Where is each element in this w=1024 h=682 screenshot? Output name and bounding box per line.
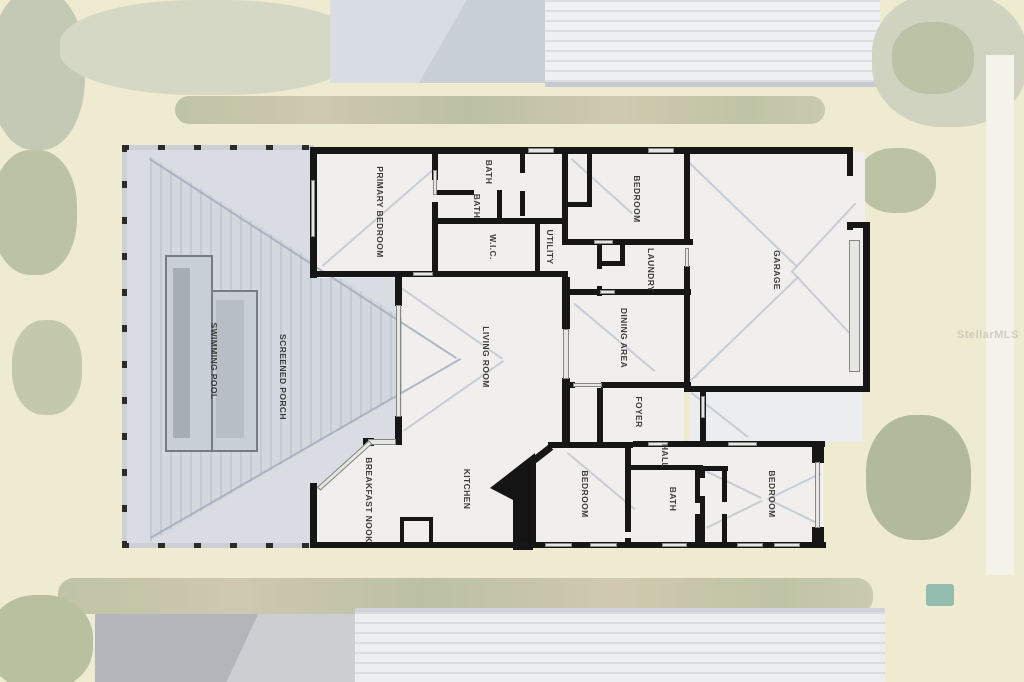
wall <box>520 152 525 173</box>
entry-porch-floor <box>690 392 863 442</box>
room-label-garage: GARAGE <box>772 250 782 290</box>
window-or-door-opening <box>774 543 800 547</box>
wall <box>429 517 433 543</box>
window-or-door-opening <box>648 148 674 153</box>
window-or-door-opening <box>737 543 763 547</box>
window-or-door-opening <box>849 240 860 372</box>
wall <box>625 538 631 548</box>
wall <box>562 239 693 245</box>
window-or-door-opening <box>528 148 554 153</box>
wall <box>625 442 631 532</box>
wall <box>562 277 570 329</box>
window-or-door-opening <box>545 543 572 547</box>
room-label-kitchen: KITCHEN <box>462 469 472 510</box>
wall <box>597 388 603 445</box>
wall <box>863 222 870 392</box>
wall <box>587 152 592 205</box>
wall <box>700 496 705 546</box>
wall <box>601 382 691 388</box>
room-label-bedroom-top: BEDROOM <box>632 175 642 222</box>
window-or-door-opening <box>728 442 757 446</box>
wall <box>690 386 865 392</box>
room-label-utility: UTILITY <box>545 230 555 265</box>
wall <box>684 266 690 392</box>
room-label-swimming-pool: SWIMMING POOL <box>209 323 219 400</box>
wall <box>562 147 568 244</box>
room-label-bedroom-right: BEDROOM <box>767 470 777 517</box>
wall <box>310 147 853 154</box>
wall <box>432 202 438 277</box>
wall <box>684 147 690 240</box>
wall <box>812 527 824 546</box>
wall <box>437 190 474 195</box>
wall <box>812 444 824 463</box>
window-or-door-opening <box>590 543 617 547</box>
room-label-bath-3: BATH <box>668 487 678 512</box>
room-label-wic: W.I.C. <box>488 234 498 260</box>
room-label-screened-porch: SCREENED PORCH <box>278 334 288 420</box>
mls-watermark: StellarMLS <box>957 329 1019 341</box>
room-label-living-room: LIVING ROOM <box>481 326 491 388</box>
room-label-bedroom-middle: BEDROOM <box>580 470 590 517</box>
room-label-breakfast-nook: BREAKFAST NOOK <box>364 457 374 542</box>
window-or-door-opening <box>368 439 396 445</box>
room-label-primary-bedroom: PRIMARY BEDROOM <box>375 166 385 257</box>
window-or-door-opening <box>815 462 820 528</box>
wall <box>722 466 727 502</box>
window-or-door-opening <box>662 543 687 547</box>
window-or-door-opening <box>594 240 613 244</box>
window-or-door-opening <box>433 170 437 195</box>
room-label-laundry: LAUNDRY <box>646 248 656 292</box>
window-or-door-opening <box>413 272 433 276</box>
room-label-bath-2: BATH <box>472 194 482 219</box>
aerial-floor-plan-scene: SWIMMING POOL SCREENED PORCH PRIMARY BED… <box>0 0 1024 682</box>
pool-water-shade-2 <box>216 300 244 438</box>
room-label-dining-area: DINING AREA <box>619 308 629 368</box>
wall <box>535 221 540 277</box>
window-or-door-opening <box>685 248 689 267</box>
screen-wall-top <box>122 145 314 150</box>
wall <box>395 276 402 306</box>
wall <box>548 442 633 448</box>
wall <box>310 271 568 277</box>
window-or-door-opening <box>563 329 569 379</box>
wall <box>395 416 402 445</box>
wall <box>597 261 625 266</box>
room-label-foyer: FOYER <box>634 396 644 427</box>
window-or-door-opening <box>311 180 315 237</box>
wall <box>847 147 853 176</box>
screen-wall-bottom <box>122 543 314 548</box>
wall <box>562 378 570 446</box>
wall <box>565 202 592 207</box>
wall <box>565 289 691 295</box>
wall <box>520 191 525 216</box>
window-or-door-opening <box>600 290 615 294</box>
screen-wall-left <box>122 145 127 548</box>
window-or-door-opening <box>396 305 401 417</box>
wall <box>437 218 568 224</box>
wall <box>310 483 317 548</box>
wall <box>722 514 727 546</box>
pool-water-shade <box>173 268 190 438</box>
wall <box>530 457 536 548</box>
room-label-hall: HALL <box>660 444 670 468</box>
window-or-door-opening <box>573 383 602 387</box>
room-label-primary-bath: BATH <box>484 160 494 185</box>
window-or-door-opening <box>701 396 705 418</box>
